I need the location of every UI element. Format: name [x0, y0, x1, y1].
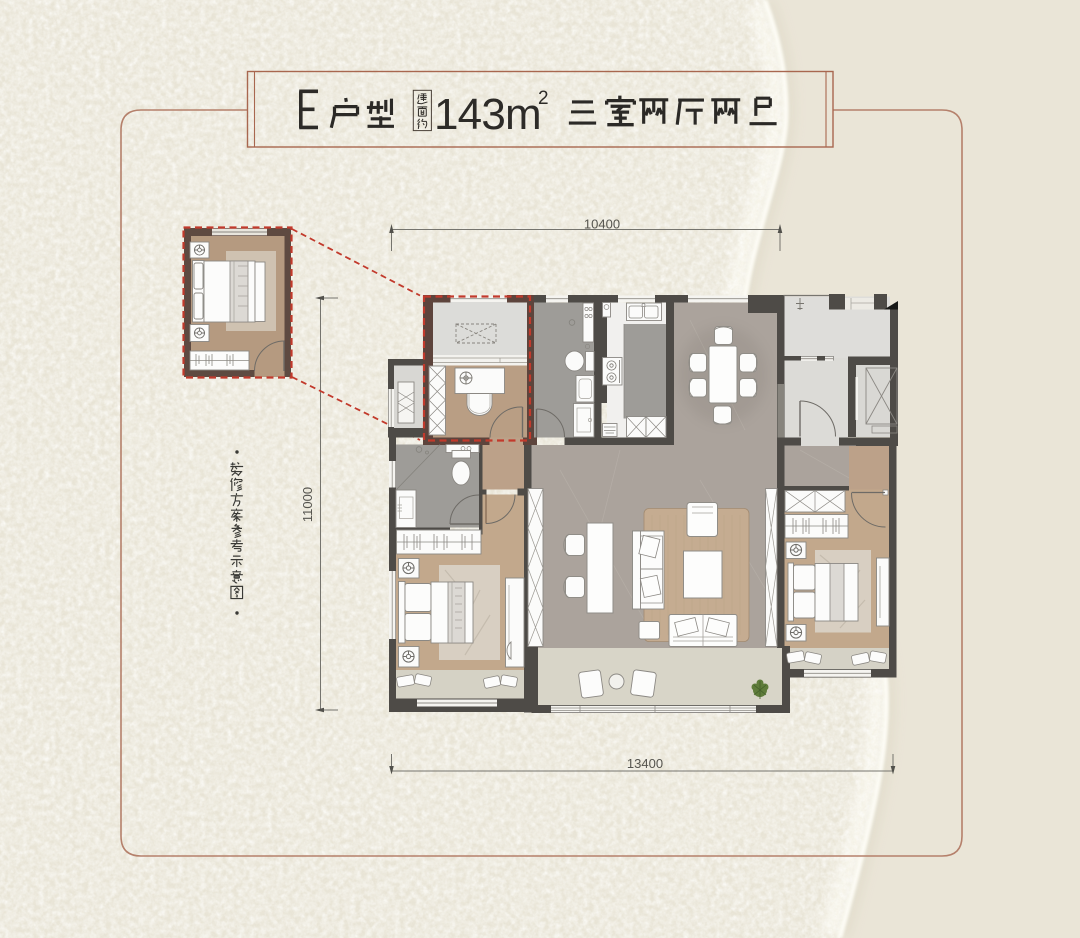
svg-text:11000: 11000 — [300, 487, 315, 522]
svg-text:13400: 13400 — [627, 756, 663, 771]
svg-text:2: 2 — [538, 88, 549, 109]
svg-text:10400: 10400 — [584, 217, 620, 232]
svg-text:143m: 143m — [434, 90, 541, 139]
